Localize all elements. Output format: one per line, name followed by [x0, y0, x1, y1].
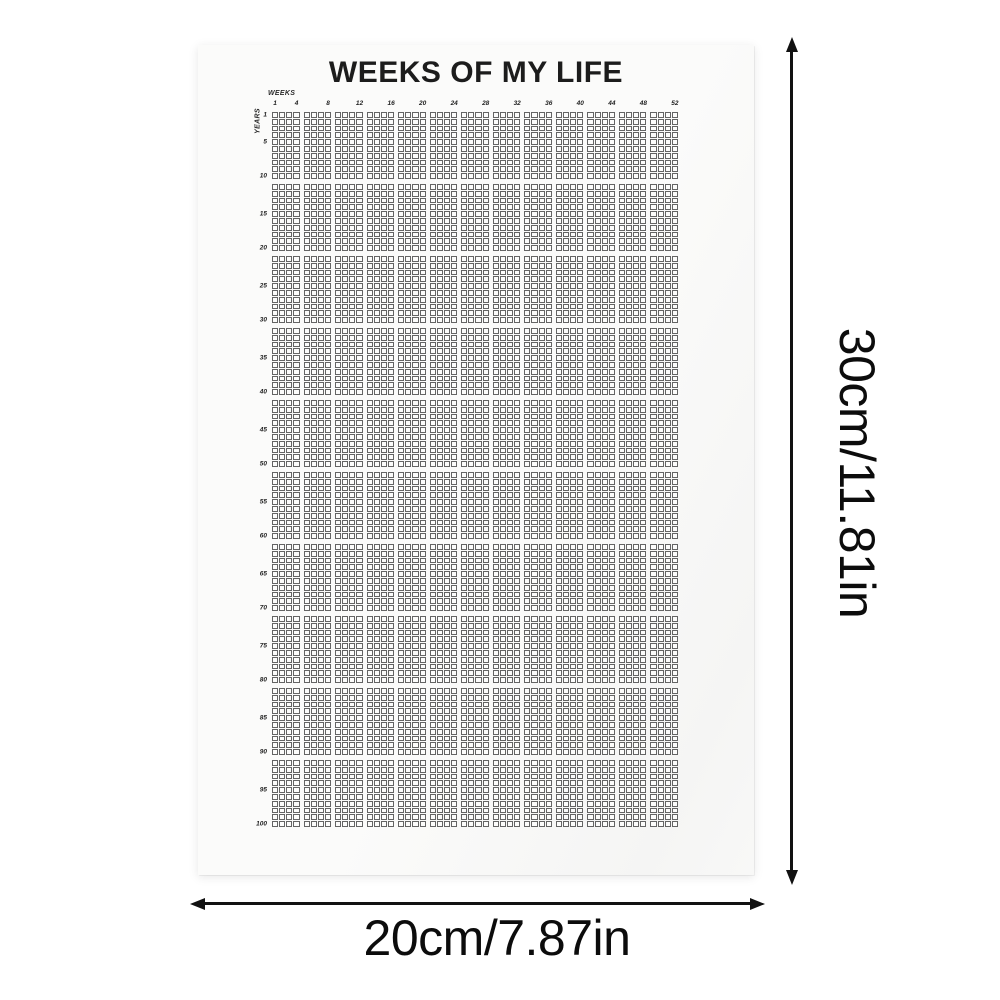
week-cell [437, 414, 443, 420]
week-cell [342, 585, 348, 591]
week-cell [563, 630, 569, 636]
week-cell [563, 506, 569, 512]
week-block [461, 544, 489, 611]
week-cell [437, 551, 443, 557]
week-cell [286, 160, 292, 166]
week-cell [672, 643, 678, 649]
week-cell [468, 630, 474, 636]
week-cell [325, 198, 331, 204]
week-cell [279, 317, 285, 323]
week-cell [398, 722, 404, 728]
week-cell [381, 454, 387, 460]
week-cell [286, 376, 292, 382]
week-cell [342, 245, 348, 251]
week-cell [374, 585, 380, 591]
week-cell [311, 184, 317, 190]
week-cell [342, 420, 348, 426]
week-cell [524, 290, 530, 296]
week-cell [650, 238, 656, 244]
week-cell [356, 232, 362, 238]
week-cell [672, 232, 678, 238]
week-cell [412, 544, 418, 550]
week-cell [430, 119, 436, 125]
week-cell [483, 643, 489, 649]
week-cell [475, 630, 481, 636]
week-cell [587, 702, 593, 708]
week-cell [430, 605, 436, 611]
week-block [272, 256, 300, 323]
week-cell [388, 715, 394, 721]
week-cell [293, 126, 299, 132]
week-cell [500, 328, 506, 334]
week-cell [570, 670, 576, 676]
week-cell [640, 119, 646, 125]
week-cell [304, 564, 310, 570]
week-cell [609, 499, 615, 505]
week-cell [556, 310, 562, 316]
week-cell [595, 558, 601, 564]
week-cell [420, 643, 426, 649]
week-cell [587, 369, 593, 375]
week-cell [430, 571, 436, 577]
week-cell [514, 448, 520, 454]
week-cell [483, 328, 489, 334]
week-cell [325, 297, 331, 303]
week-cell [626, 232, 632, 238]
week-cell [318, 304, 324, 310]
week-cell [587, 729, 593, 735]
week-cell [539, 304, 545, 310]
week-cell [451, 526, 457, 532]
week-cell [609, 749, 615, 755]
week-cell [475, 153, 481, 159]
week-cell [531, 310, 537, 316]
week-cell [398, 420, 404, 426]
week-cell [556, 441, 562, 447]
week-cell [367, 479, 373, 485]
week-cell [420, 636, 426, 642]
week-cell [595, 434, 601, 440]
week-cell [444, 585, 450, 591]
week-cell [531, 270, 537, 276]
week-cell [367, 454, 373, 460]
week-cell [293, 544, 299, 550]
week-cell [468, 184, 474, 190]
week-cell [311, 448, 317, 454]
week-cell [602, 362, 608, 368]
week-cell [388, 225, 394, 231]
week-cell [556, 486, 562, 492]
week-cell [546, 585, 552, 591]
week-cell [451, 232, 457, 238]
week-cell [430, 708, 436, 714]
week-cell [546, 119, 552, 125]
week-block [493, 112, 521, 179]
week-cell [381, 146, 387, 152]
week-cell [609, 232, 615, 238]
week-cell [286, 369, 292, 375]
week-cell [444, 362, 450, 368]
week-cell [325, 270, 331, 276]
week-cell [609, 551, 615, 557]
week-cell [609, 342, 615, 348]
week-block [524, 472, 552, 539]
week-cell [374, 139, 380, 145]
week-cell [381, 708, 387, 714]
week-cell [633, 461, 639, 467]
week-cell [602, 310, 608, 316]
week-cell [318, 232, 324, 238]
week-cell [430, 245, 436, 251]
week-cell [672, 342, 678, 348]
week-cell [665, 688, 671, 694]
week-block [524, 184, 552, 251]
week-cell [461, 472, 467, 478]
week-cell [272, 472, 278, 478]
week-cell [335, 643, 341, 649]
week-cell [388, 376, 394, 382]
week-cell [483, 376, 489, 382]
week-cell [650, 198, 656, 204]
week-cell [374, 153, 380, 159]
week-cell [388, 722, 394, 728]
week-cell [451, 218, 457, 224]
week-cell [388, 454, 394, 460]
week-cell [272, 132, 278, 138]
week-cell [325, 132, 331, 138]
week-cell [437, 695, 443, 701]
week-cell [658, 348, 664, 354]
week-cell [325, 664, 331, 670]
week-cell [609, 585, 615, 591]
week-cell [587, 263, 593, 269]
week-cell [524, 376, 530, 382]
week-cell [325, 598, 331, 604]
week-cell [507, 283, 513, 289]
week-cell [349, 492, 355, 498]
week-cell [342, 708, 348, 714]
week-cell [398, 198, 404, 204]
week-cell [374, 420, 380, 426]
week-cell [475, 225, 481, 231]
week-cell [461, 486, 467, 492]
week-cell [318, 441, 324, 447]
week-cell [444, 191, 450, 197]
week-cell [587, 218, 593, 224]
week-cell [325, 355, 331, 361]
year-number: 75 [260, 643, 267, 650]
week-cell [619, 126, 625, 132]
week-cell [493, 564, 499, 570]
week-cell [650, 297, 656, 303]
week-cell [367, 146, 373, 152]
week-cell [658, 650, 664, 656]
week-cell [286, 348, 292, 354]
week-cell [524, 454, 530, 460]
week-cell [279, 369, 285, 375]
week-cell [318, 290, 324, 296]
week-cell [335, 342, 341, 348]
week-cell [349, 119, 355, 125]
week-cell [531, 742, 537, 748]
week-cell [531, 434, 537, 440]
week-block [272, 328, 300, 395]
week-cell [451, 407, 457, 413]
week-block [556, 328, 584, 395]
week-cell [650, 605, 656, 611]
week-cell [388, 232, 394, 238]
week-cell [531, 636, 537, 642]
week-cell [633, 218, 639, 224]
week-cell [405, 506, 411, 512]
week-cell [342, 376, 348, 382]
week-cell [279, 670, 285, 676]
week-cell [342, 506, 348, 512]
week-cell [672, 146, 678, 152]
week-cell [500, 461, 506, 467]
week-cell [286, 290, 292, 296]
week-cell [531, 592, 537, 598]
week-cell [633, 310, 639, 316]
week-cell [335, 191, 341, 197]
week-cell [367, 245, 373, 251]
week-cell [437, 578, 443, 584]
week-cell [587, 310, 593, 316]
week-cell [374, 715, 380, 721]
week-cell [335, 533, 341, 539]
week-cell [437, 544, 443, 550]
week-cell [514, 630, 520, 636]
week-cell [272, 702, 278, 708]
week-cell [311, 585, 317, 591]
week-cell [304, 461, 310, 467]
week-cell [563, 310, 569, 316]
week-cell [335, 722, 341, 728]
week-cell [577, 276, 583, 282]
week-cell [388, 400, 394, 406]
week-cell [398, 708, 404, 714]
week-cell [514, 191, 520, 197]
week-cell [430, 670, 436, 676]
week-cell [304, 544, 310, 550]
week-cell [640, 677, 646, 683]
week-cell [626, 598, 632, 604]
week-cell [356, 441, 362, 447]
week-cell [507, 598, 513, 604]
week-cell [633, 486, 639, 492]
week-cell [640, 695, 646, 701]
week-cell [388, 605, 394, 611]
week-cell [349, 191, 355, 197]
week-cell [318, 310, 324, 316]
week-cell [475, 434, 481, 440]
week-cell [349, 605, 355, 611]
week-cell [595, 736, 601, 742]
week-cell [272, 414, 278, 420]
week-block [304, 760, 332, 827]
week-cell [311, 664, 317, 670]
week-cell [420, 153, 426, 159]
week-cell [500, 598, 506, 604]
week-cell [493, 736, 499, 742]
week-cell [342, 636, 348, 642]
week-cell [374, 146, 380, 152]
week-cell [546, 486, 552, 492]
week-cell [602, 722, 608, 728]
week-cell [468, 729, 474, 735]
week-cell [650, 441, 656, 447]
week-cell [388, 407, 394, 413]
week-cell [665, 434, 671, 440]
week-cell [325, 808, 331, 814]
week-cell [304, 328, 310, 334]
week-cell [304, 492, 310, 498]
week-cell [650, 670, 656, 676]
week-block [493, 184, 521, 251]
week-cell [546, 317, 552, 323]
week-cell [286, 191, 292, 197]
week-number: 48 [640, 100, 647, 107]
week-cell [609, 664, 615, 670]
week-cell [609, 276, 615, 282]
week-cell [412, 434, 418, 440]
week-cell [672, 191, 678, 197]
week-cell [304, 760, 310, 766]
week-cell [279, 441, 285, 447]
week-cell [405, 153, 411, 159]
week-cell [640, 558, 646, 564]
week-cell [493, 218, 499, 224]
week-cell [293, 146, 299, 152]
week-cell [342, 688, 348, 694]
week-cell [665, 526, 671, 532]
week-cell [468, 310, 474, 316]
week-block [650, 688, 678, 755]
week-cell [374, 232, 380, 238]
week-cell [468, 204, 474, 210]
week-cell [587, 677, 593, 683]
week-cell [658, 702, 664, 708]
week-cell [626, 191, 632, 197]
week-cell [570, 729, 576, 735]
week-cell [563, 616, 569, 622]
week-cell [672, 499, 678, 505]
week-cell [451, 571, 457, 577]
week-cell [405, 688, 411, 694]
week-cell [563, 245, 569, 251]
week-cell [374, 304, 380, 310]
week-cell [500, 407, 506, 413]
week-cell [556, 729, 562, 735]
week-cell [493, 506, 499, 512]
week-cell [563, 304, 569, 310]
week-cell [633, 382, 639, 388]
week-cell [595, 472, 601, 478]
week-cell [388, 695, 394, 701]
week-cell [374, 814, 380, 820]
week-cell [381, 112, 387, 118]
week-cell [398, 283, 404, 289]
week-cell [483, 297, 489, 303]
week-cell [507, 290, 513, 296]
week-cell [658, 362, 664, 368]
week-cell [500, 571, 506, 577]
week-cell [475, 263, 481, 269]
week-cell [398, 355, 404, 361]
week-cell [461, 592, 467, 598]
week-cell [507, 270, 513, 276]
week-cell [388, 767, 394, 773]
week-cell [626, 558, 632, 564]
week-cell [577, 263, 583, 269]
week-cell [500, 677, 506, 683]
week-cell [602, 742, 608, 748]
week-cell [493, 722, 499, 728]
week-cell [388, 276, 394, 282]
week-cell [279, 492, 285, 498]
week-cell [437, 499, 443, 505]
week-cell [388, 126, 394, 132]
week-cell [493, 643, 499, 649]
week-cell [619, 664, 625, 670]
week-cell [563, 492, 569, 498]
week-cell [311, 369, 317, 375]
week-cell [633, 400, 639, 406]
week-cell [577, 702, 583, 708]
week-cell [286, 623, 292, 629]
week-cell [619, 578, 625, 584]
week-cell [461, 544, 467, 550]
week-cell [633, 526, 639, 532]
week-cell [444, 382, 450, 388]
week-cell [420, 427, 426, 433]
week-cell [381, 760, 387, 766]
week-cell [367, 126, 373, 132]
week-cell [563, 369, 569, 375]
week-cell [461, 715, 467, 721]
week-cell [444, 715, 450, 721]
week-cell [587, 551, 593, 557]
week-cell [367, 664, 373, 670]
week-block [619, 544, 647, 611]
week-block [461, 688, 489, 755]
week-cell [546, 479, 552, 485]
week-cell [563, 722, 569, 728]
week-cell [507, 461, 513, 467]
week-cell [367, 558, 373, 564]
year-number: 100 [256, 821, 267, 828]
week-cell [356, 616, 362, 622]
week-cell [570, 702, 576, 708]
week-cell [595, 664, 601, 670]
week-cell [412, 571, 418, 577]
week-cell [658, 400, 664, 406]
week-cell [672, 636, 678, 642]
week-cell [304, 664, 310, 670]
week-cell [570, 688, 576, 694]
week-cell [349, 742, 355, 748]
week-cell [556, 715, 562, 721]
week-cell [367, 389, 373, 395]
week-cell [325, 767, 331, 773]
week-cell [587, 204, 593, 210]
week-cell [546, 544, 552, 550]
week-cell [658, 297, 664, 303]
week-cell [437, 407, 443, 413]
week-cell [640, 715, 646, 721]
week-cell [514, 551, 520, 557]
week-cell [461, 184, 467, 190]
